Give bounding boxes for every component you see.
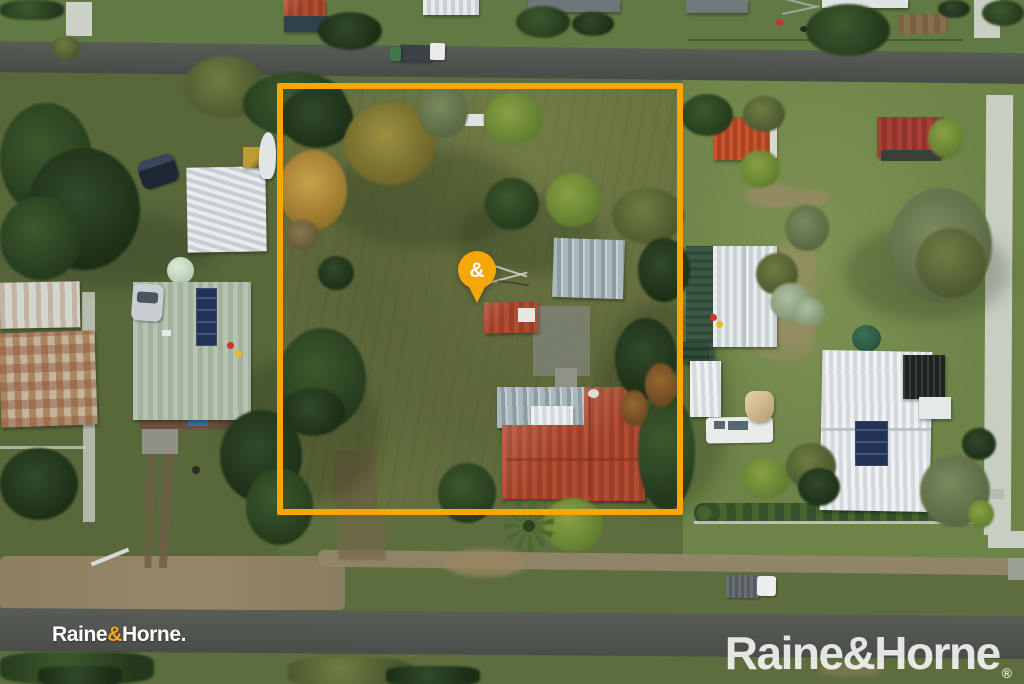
deck-item — [188, 420, 208, 426]
logo-text: Horne — [122, 623, 181, 646]
truck-bin — [390, 47, 401, 61]
tree — [982, 0, 1024, 26]
ute-tray — [726, 575, 759, 599]
bare-patch — [744, 184, 802, 208]
outbuilding-roof — [0, 281, 80, 328]
aerial-photo: & Raine&Horne. Raine&Horne® — [0, 0, 1024, 684]
tree — [572, 12, 614, 36]
dirt-crossing — [443, 549, 527, 577]
red-object — [776, 19, 783, 26]
water-tank-green — [852, 325, 881, 352]
shed-roof — [423, 0, 479, 15]
footpath-right — [984, 95, 1013, 535]
footpath-left-low — [83, 418, 95, 522]
tree — [0, 0, 64, 20]
outbuilding-roof — [919, 397, 951, 419]
boat — [258, 132, 277, 180]
tree — [785, 205, 829, 251]
tree — [516, 6, 570, 38]
tree — [938, 0, 970, 18]
palm-center — [523, 520, 535, 532]
watermark-text: Raine — [725, 627, 843, 679]
marker-yellow — [716, 321, 723, 328]
culvert — [1008, 558, 1024, 580]
registered-mark: ® — [1002, 665, 1012, 681]
caravan-hatch — [728, 421, 748, 430]
marker-red — [227, 342, 234, 349]
tree — [386, 666, 480, 684]
logo-text: Raine — [52, 623, 107, 646]
tree — [928, 118, 964, 158]
logo-period: . — [181, 623, 186, 646]
garden-bed — [898, 13, 949, 35]
footpath-corner — [988, 531, 1024, 548]
tree — [0, 196, 82, 280]
roof-ridge — [743, 246, 746, 347]
shed-roof — [186, 166, 266, 252]
deck — [686, 0, 748, 13]
fire-pit — [192, 466, 200, 474]
pin-ampersand: & — [469, 260, 484, 281]
shrub — [740, 150, 780, 188]
tree — [806, 4, 890, 56]
tree — [962, 428, 996, 460]
tree — [52, 36, 80, 60]
location-pin-icon: & — [458, 251, 496, 305]
solar-panels — [196, 288, 217, 346]
tree — [743, 96, 785, 132]
property-track — [338, 512, 386, 560]
raine-horne-watermark: Raine&Horne® — [725, 626, 1012, 680]
house-roof-rusty — [0, 330, 98, 427]
tree — [742, 458, 790, 498]
tree — [681, 94, 733, 136]
path-pad — [991, 489, 1004, 499]
raine-horne-logo: Raine&Horne. — [52, 623, 186, 647]
watermark-text: Horne — [874, 627, 999, 679]
house-roof — [690, 361, 721, 417]
pin-head: & — [458, 251, 496, 289]
car-windshield — [137, 291, 159, 303]
dirt-shoulder — [0, 556, 345, 610]
truck-cab — [430, 43, 445, 60]
marker-red — [710, 314, 717, 321]
shrub — [793, 298, 825, 326]
shrub — [798, 468, 840, 506]
roof-vent — [162, 330, 171, 336]
solar-panels — [855, 421, 888, 466]
bare-patch — [797, 190, 829, 206]
watermark-ampersand: & — [843, 627, 875, 679]
canopy-tent — [745, 391, 774, 422]
tree — [318, 12, 382, 50]
shrub — [968, 500, 994, 528]
tree — [0, 448, 78, 520]
house-roof-green — [683, 342, 707, 363]
caravan-hatch — [714, 421, 725, 429]
tree — [916, 228, 986, 298]
tree — [38, 666, 122, 684]
logo-ampersand: & — [107, 623, 122, 646]
ute-cab — [757, 576, 776, 596]
water-tank — [167, 257, 194, 284]
shade-pergola — [903, 355, 945, 399]
driveway-concrete — [66, 2, 92, 36]
marker-yellow — [235, 350, 242, 357]
concrete-pad — [142, 426, 178, 454]
truck-tray — [400, 45, 432, 63]
